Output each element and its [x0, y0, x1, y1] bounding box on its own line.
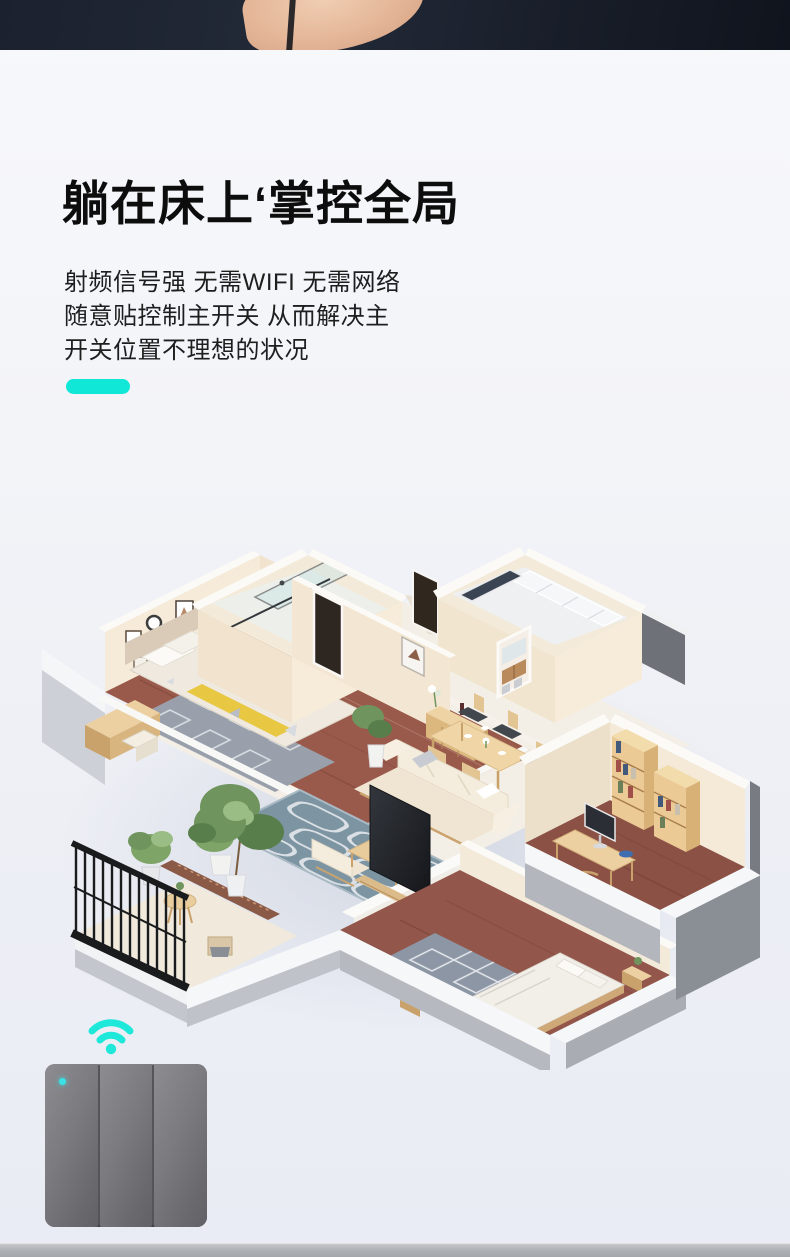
switch-led-indicator — [59, 1078, 66, 1085]
wifi-signal-icon — [85, 1011, 137, 1055]
floorplan-scene — [42, 547, 760, 1070]
bookshelf1 — [612, 729, 658, 830]
wicker-chair — [208, 937, 232, 957]
apartment-floorplan-illustration — [30, 545, 760, 1070]
wall-switch-product — [45, 1064, 207, 1227]
hero-photo-strip — [0, 0, 790, 50]
accent-bar — [66, 379, 130, 394]
model-elbow-photo-fragment — [237, 0, 430, 50]
bookshelf2 — [654, 765, 700, 852]
mousepad — [619, 851, 633, 858]
left-outer-wall — [42, 649, 105, 785]
switch-rocker-2[interactable] — [100, 1064, 153, 1227]
subtext-line-2: 随意贴控制主开关 从而解决主 — [64, 303, 390, 330]
switch-rocker-1[interactable] — [45, 1064, 98, 1227]
feature-subtext: 射频信号强 无需WIFI 无需网络随意贴控制主开关 从而解决主开关位置不理想的状… — [64, 266, 400, 368]
switch-rocker-3[interactable] — [154, 1064, 207, 1227]
product-detail-page: 躺在床上‘掌控全局 射频信号强 无需WIFI 无需网络随意贴控制主开关 从而解决… — [0, 0, 790, 1257]
subtext-line-3: 开关位置不理想的状况 — [64, 337, 309, 364]
feature-headline: 躺在床上‘掌控全局 — [62, 176, 460, 232]
next-section-edge — [0, 1243, 790, 1257]
shower-head — [280, 581, 285, 586]
hall-door — [314, 591, 342, 677]
subtext-line-1: 射频信号强 无需WIFI 无需网络 — [64, 269, 400, 296]
